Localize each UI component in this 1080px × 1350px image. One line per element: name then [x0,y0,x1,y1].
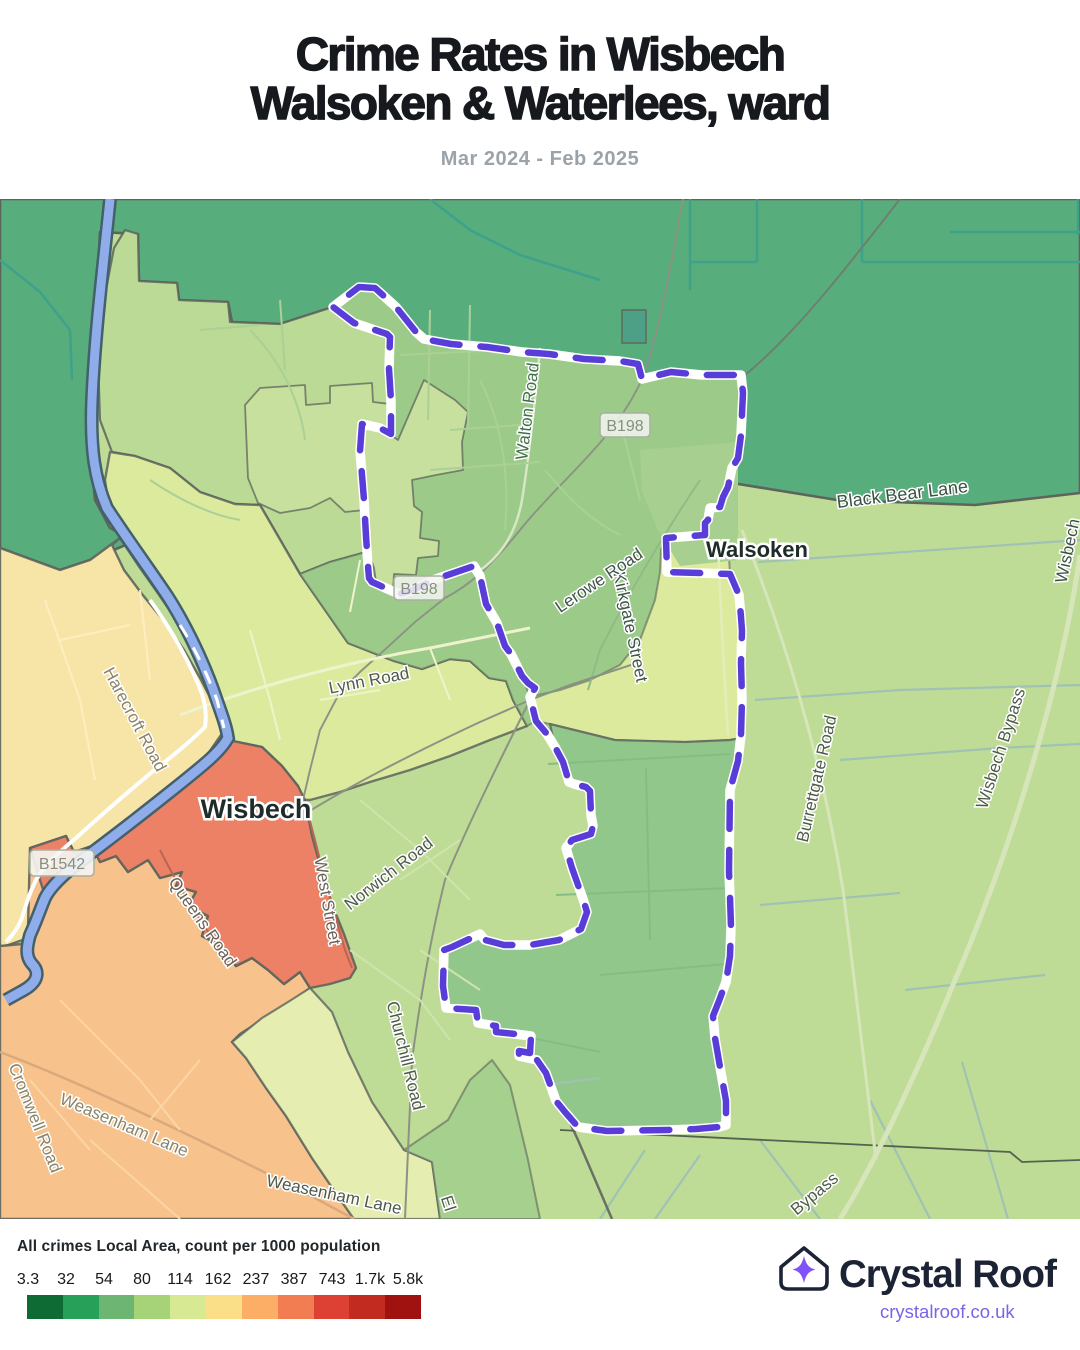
svg-text:Wisbech: Wisbech [201,794,312,824]
svg-text:Crystal Roof: Crystal Roof [839,1253,1057,1296]
svg-text:Walsoken: Walsoken [706,537,808,562]
svg-text:B198: B198 [400,581,437,598]
svg-text:B198: B198 [606,418,643,435]
svg-text:B1542: B1542 [39,856,85,873]
